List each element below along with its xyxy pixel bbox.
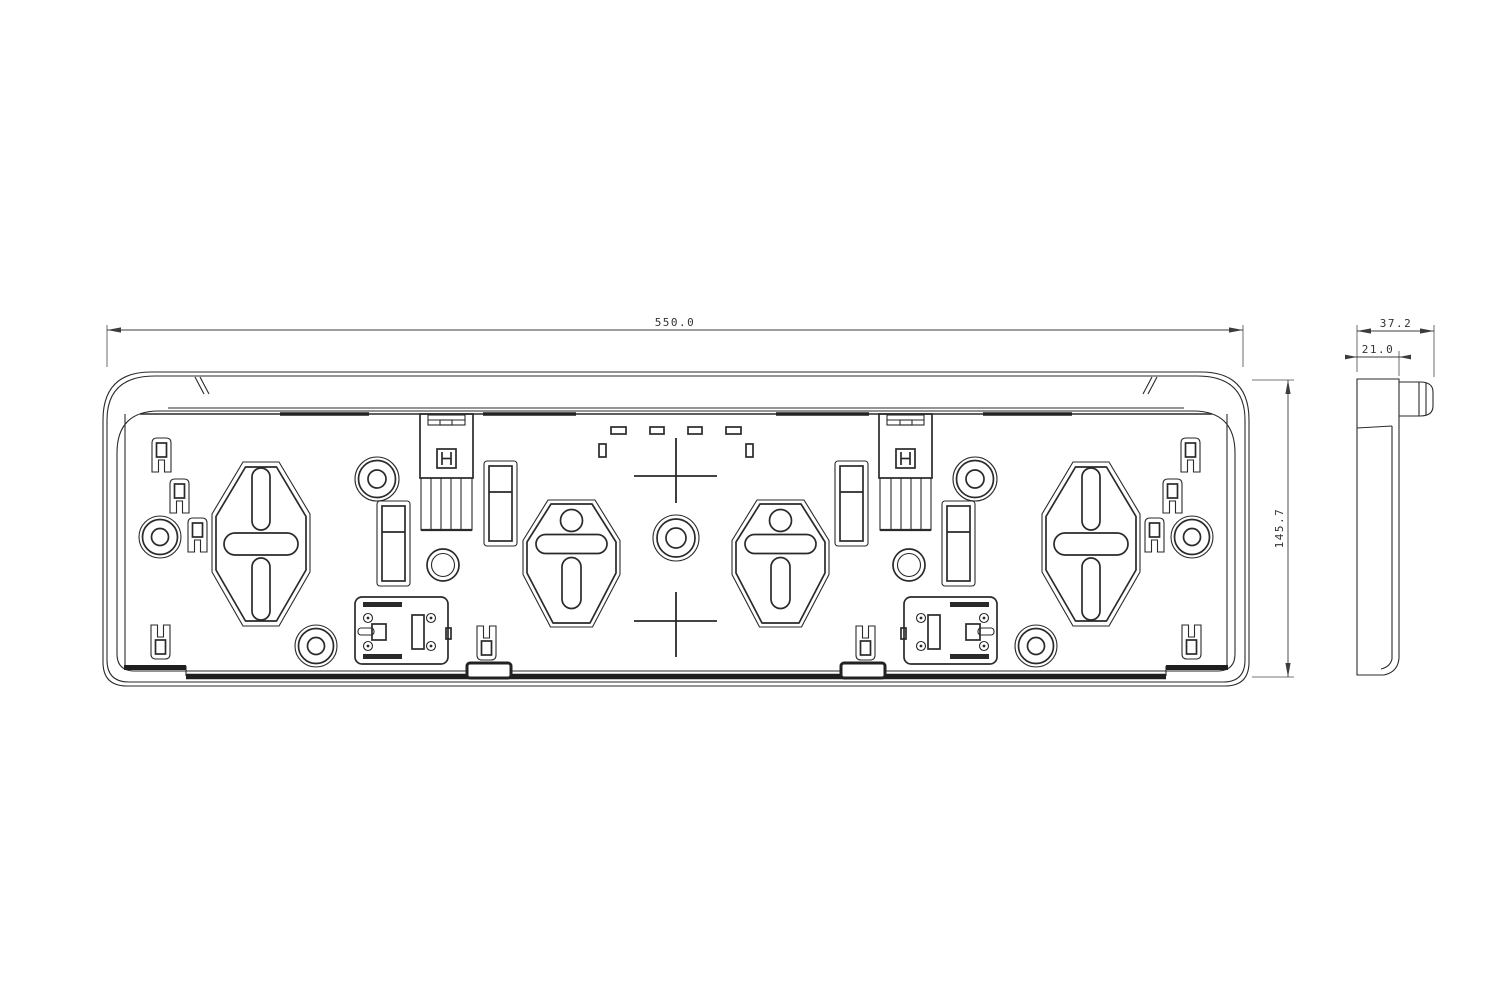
dimension-front-width: 550.0 xyxy=(107,316,1243,367)
center-mark-upper xyxy=(634,438,717,503)
dim-front-height-label: 145.7 xyxy=(1273,508,1286,549)
dimension-front-height: 145.7 xyxy=(1252,380,1294,677)
side-pocket-lip xyxy=(1399,382,1433,416)
dim-side-pocket-depth-label: 21.0 xyxy=(1362,343,1395,356)
features-right-half xyxy=(688,377,1228,678)
technical-drawing-canvas: 550.0 145.7 37.2 21.0 xyxy=(0,0,1500,1000)
center-hole xyxy=(653,515,699,561)
front-view xyxy=(103,372,1249,686)
side-profile-outline xyxy=(1357,379,1399,675)
center-mark-lower xyxy=(634,592,717,657)
side-view xyxy=(1357,379,1433,675)
features-left-half xyxy=(124,377,664,678)
dim-front-width-label: 550.0 xyxy=(655,316,696,329)
dimension-side-pocket-depth: 21.0 xyxy=(1345,343,1411,376)
dim-side-depth-label: 37.2 xyxy=(1380,317,1413,330)
